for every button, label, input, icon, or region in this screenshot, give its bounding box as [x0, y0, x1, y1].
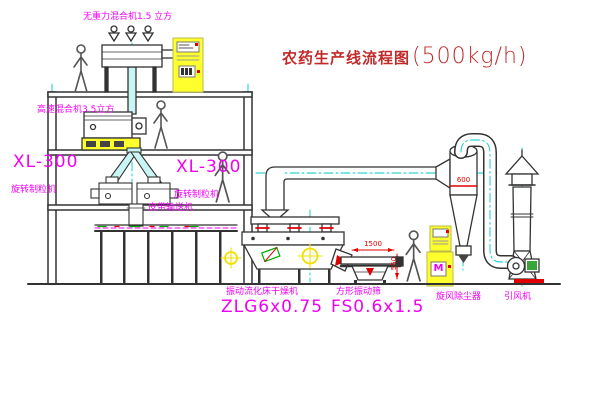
label-fan: 引风机 — [504, 293, 531, 303]
motor-icon: M — [432, 263, 445, 275]
label-granulator-model-left: XL-300 — [13, 153, 78, 172]
granulators — [91, 148, 178, 226]
fluid-bed-dryer — [242, 167, 436, 284]
dim-sieve-height: 550 — [391, 257, 398, 270]
label-belt-conveyor: 皮带输送机 — [148, 204, 193, 214]
label-cyclone: 旋风除尘器 — [436, 293, 481, 303]
label-dryer-model: ZLG6x0.75 — [221, 298, 323, 317]
title-capacity: (500kg/h) — [412, 44, 527, 69]
dim-cyclone-body: 600 — [451, 177, 476, 184]
control-cabinet-right — [427, 226, 453, 286]
label-gravity-free-mixer: 无重力混合机1.5 立方 — [83, 13, 172, 23]
person-figure — [406, 231, 420, 281]
title-text: 农药生产线流程图 — [282, 47, 410, 68]
diagram-title: 农药生产线流程图 (500kg/h) — [282, 44, 527, 69]
control-cabinet-top — [173, 38, 203, 92]
label-granulator-model-right: XL-300 — [176, 158, 241, 177]
belt-conveyor — [95, 225, 237, 284]
dim-sieve-width: 1500 — [356, 241, 390, 248]
person-figure — [74, 45, 87, 92]
high-speed-mixer — [82, 112, 146, 150]
process-flow-diagram: 农药生产线流程图 (500kg/h) 无重力混合机1.5 立方 高速混合机3.5… — [0, 0, 600, 403]
label-granulator-name-left: 旋转制粒机 — [11, 186, 56, 196]
label-granulator-name-right: 旋转制粒机 — [174, 191, 219, 201]
label-high-speed-mixer: 高速混合机3.5立方 — [37, 106, 114, 116]
person-figure — [154, 101, 167, 148]
label-sieve-model: FS0.6x1.5 — [331, 298, 424, 317]
